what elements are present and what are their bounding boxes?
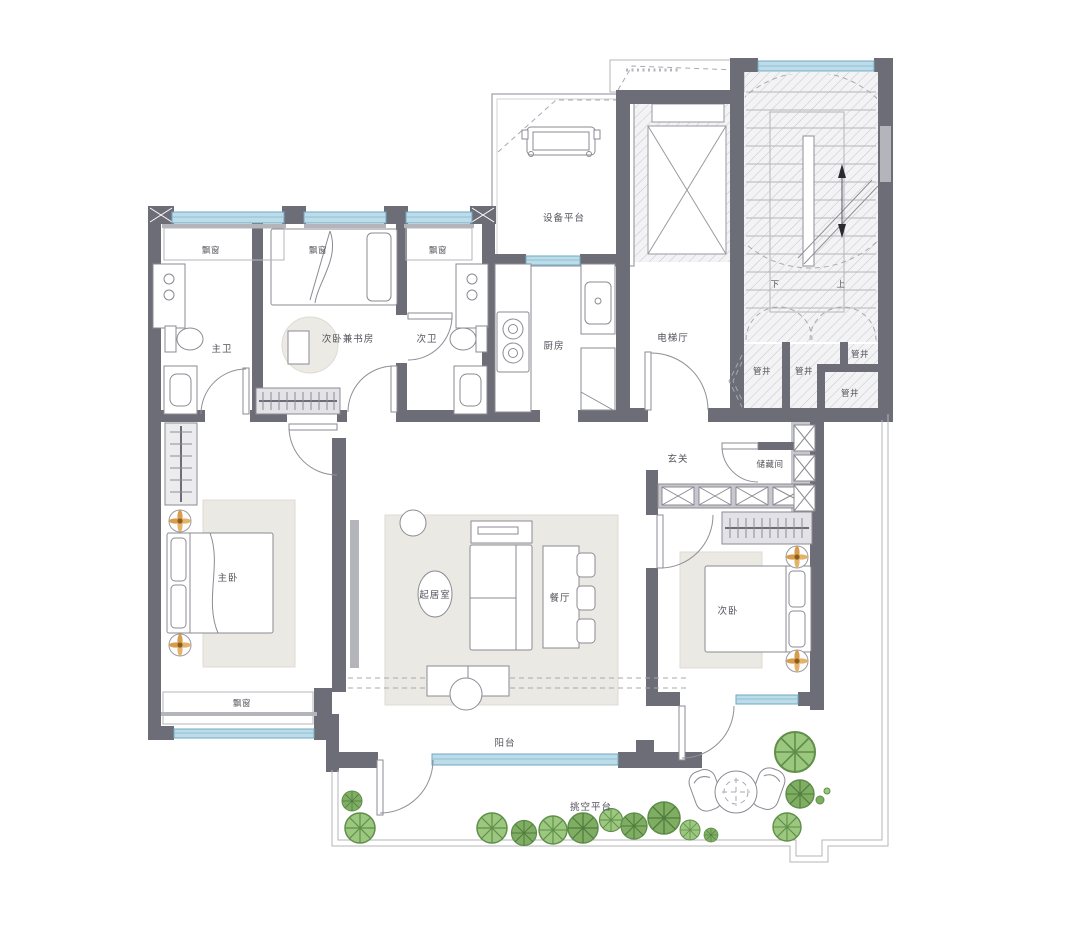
master-bay-window (174, 729, 314, 738)
study-room-door (348, 366, 397, 412)
label-master-bathroom: 主卫 (211, 343, 232, 355)
label-storage-room: 储藏间 (756, 459, 783, 469)
label-stairs-down: 下 (770, 279, 779, 289)
label-pipe-shaft-2: 管井 (795, 366, 813, 376)
sofa (470, 545, 532, 650)
dining-chairs (577, 553, 595, 643)
terrace-set (686, 765, 788, 814)
label-bay-window-4: 飘窗 (233, 698, 251, 708)
label-pipe-shaft-4: 管井 (841, 388, 859, 398)
label-master-bedroom: 主卧 (217, 572, 238, 584)
stair-window (758, 61, 874, 71)
bay-window-1 (172, 212, 284, 223)
label-living-room: 起居室 (419, 589, 451, 601)
bay-window-3 (406, 212, 472, 223)
terrace-door (679, 706, 734, 760)
label-dining-room: 餐厅 (549, 592, 570, 604)
floor-plan: 飘窗 飘窗 飘窗 飘窗 主卫 次卧兼书房 次卫 厨房 设备平台 电梯厅 管井 管… (0, 0, 1080, 938)
second-bedroom-window (736, 695, 798, 704)
label-elevator-hall: 电梯厅 (657, 332, 689, 344)
label-pipe-shaft-1: 管井 (753, 366, 771, 376)
master-closet (165, 423, 197, 505)
study-wardrobe (256, 388, 340, 414)
kitchen-window (526, 256, 580, 265)
floor-plan-svg: 飘窗 飘窗 飘窗 飘窗 主卫 次卧兼书房 次卫 厨房 设备平台 电梯厅 管井 管… (0, 0, 1080, 938)
master-bedroom-door (289, 424, 337, 475)
tv-console (471, 521, 532, 543)
storage-shelving (794, 425, 815, 511)
label-kitchen: 厨房 (543, 340, 564, 352)
label-stairs-up: 上 (836, 279, 845, 289)
storage-door (722, 443, 758, 482)
label-foyer: 玄关 (667, 453, 688, 465)
bay-window-2 (304, 212, 386, 223)
label-pipe-shaft-3: 管井 (851, 349, 869, 359)
balcony-window (432, 754, 618, 765)
bay-seat-4 (163, 692, 313, 724)
equipment-platform (492, 94, 634, 266)
label-equipment-platform: 设备平台 (543, 212, 585, 224)
foyer-cabinets (658, 484, 812, 508)
label-balcony: 阳台 (494, 737, 515, 749)
study-bed (271, 229, 397, 305)
side-table (400, 510, 426, 536)
label-second-bathroom: 次卫 (416, 333, 437, 345)
kitchen-counters (495, 264, 615, 412)
label-bay-window-3: 飘窗 (429, 245, 447, 255)
second-bath-fixtures (450, 264, 488, 414)
bay-seat-1 (164, 228, 284, 260)
balcony-door (377, 760, 433, 815)
label-bay-window-1: 飘窗 (202, 245, 220, 255)
study-desk (288, 331, 309, 364)
label-bay-window-2: 飘窗 (309, 245, 327, 255)
entry-door (645, 352, 708, 410)
second-bedroom-wardrobe (722, 512, 812, 544)
ac-unit-icon (522, 127, 600, 157)
label-study-bedroom: 次卧兼书房 (322, 333, 375, 345)
label-cantilevered-platform: 挑空平台 (570, 801, 612, 813)
master-bath-door (201, 368, 249, 414)
bay-seat-3 (406, 228, 472, 260)
label-second-bedroom: 次卧 (717, 605, 738, 617)
